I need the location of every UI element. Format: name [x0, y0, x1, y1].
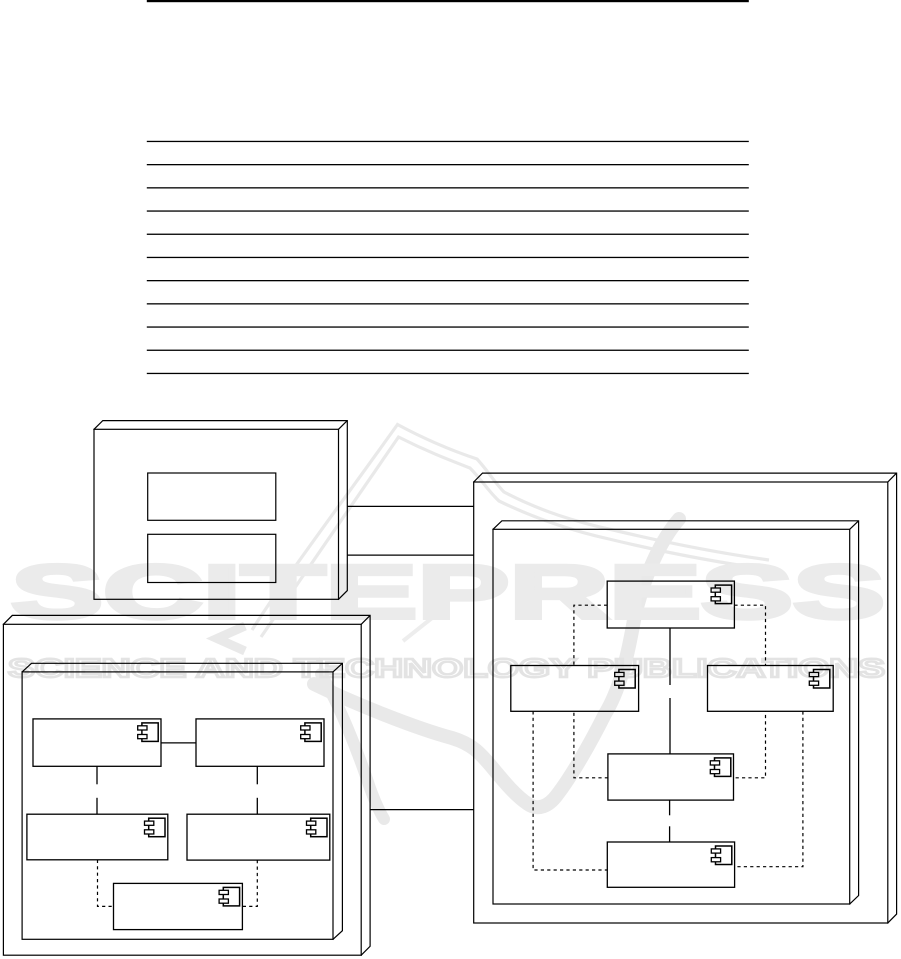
- svg-text:SCITEPRESS: SCITEPRESS: [11, 550, 885, 635]
- svg-text:SCIENCE AND TECHNOLOGY PUBLICA: SCIENCE AND TECHNOLOGY PUBLICATIONS: [8, 655, 885, 683]
